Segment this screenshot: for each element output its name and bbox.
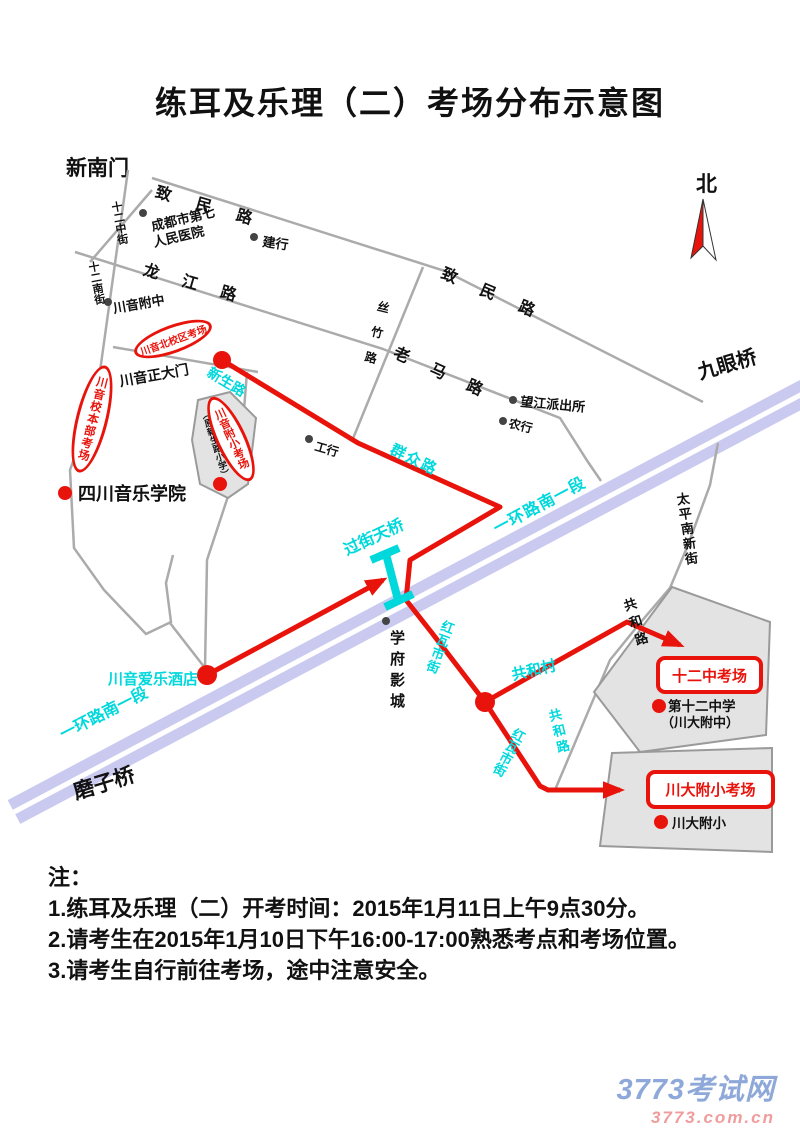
notes-block: 注： 1.练耳及乐理（二）开考时间：2015年1月11日上午9点30分。 2.请… xyxy=(48,862,690,986)
poi-ccb: 建行 xyxy=(262,234,290,252)
venue-box-cd-fuxiao: 川大附小考场 xyxy=(646,770,775,809)
exam-map-page: 练耳及乐理（二）考场分布示意图 新南门 北 xyxy=(0,0,800,1130)
poi-abc: 农行 xyxy=(506,415,534,436)
dot-hotel xyxy=(197,665,217,685)
dot-conservatory xyxy=(58,486,72,500)
dot-junction xyxy=(475,692,495,712)
road-label-zhimin-east: 致民路 xyxy=(438,264,561,331)
road-label-gonghe-village: 共和村 xyxy=(510,656,558,684)
poi-main-gate: 川音正大门 xyxy=(117,361,190,389)
note-item-1: 1.练耳及乐理（二）开考时间：2015年1月11日上午9点30分。 xyxy=(48,893,690,924)
campus-boundary-hotel xyxy=(170,623,205,668)
road-label-laoma: 老马路 xyxy=(390,342,508,409)
poi-icbc: 工行 xyxy=(313,438,340,459)
watermark: 3773考试网 3773.com.cn xyxy=(616,1066,775,1128)
venue-box-no12: 十二中考场 xyxy=(656,656,763,694)
poi-cinema: 学府影城 xyxy=(386,630,407,714)
watermark-domain: 3773.com.cn xyxy=(616,1108,775,1128)
watermark-site: 3773考试网 xyxy=(616,1066,775,1108)
dot-hospital xyxy=(139,209,147,217)
dot-abc xyxy=(499,417,507,425)
dot-cd-fuxiao xyxy=(654,815,668,829)
dot-ccb xyxy=(250,233,258,241)
compass-needle-icon xyxy=(691,199,716,260)
dot-cinema xyxy=(382,617,390,625)
dot-no12-school xyxy=(652,699,666,713)
notes-heading: 注： xyxy=(48,862,690,893)
poi-hotel: 川音爱乐酒店 xyxy=(107,670,198,688)
poi-conservatory: 四川音乐学院 xyxy=(78,483,186,504)
dot-police xyxy=(509,396,517,404)
route-main-gate-to-junction xyxy=(222,360,500,702)
road-label-qunzhong: 群众路 xyxy=(387,440,441,479)
dot-icbc xyxy=(305,435,313,443)
poi-no12-school: 第十二中学 xyxy=(668,698,736,714)
note-item-2: 2.请考生在2015年1月10日下午16:00-17:00熟悉考点和考场位置。 xyxy=(48,924,690,955)
note-item-3: 3.请考生自行前往考场，途中注意安全。 xyxy=(48,955,690,986)
poi-cy-fuzhong: 川音附中 xyxy=(111,292,166,316)
landmark-jiuyanqiao: 九眼桥 xyxy=(694,345,760,384)
poi-no12-school-alias: （川大附中） xyxy=(661,715,739,730)
poi-cd-fuxiao: 川大附小 xyxy=(671,815,726,831)
poi-police: 望江派出所 xyxy=(520,394,586,415)
